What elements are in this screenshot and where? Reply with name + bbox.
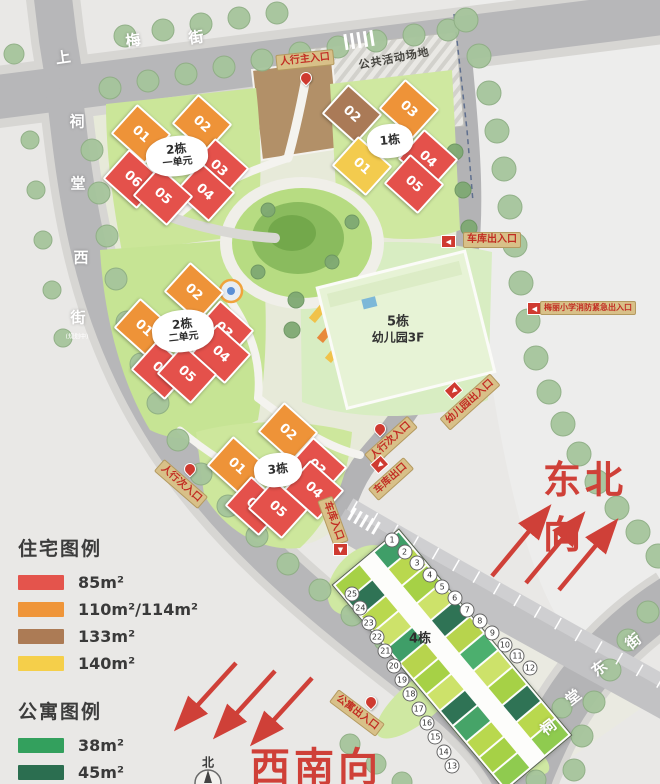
street-shangmei-char: 街 bbox=[187, 26, 205, 49]
legend-swatch-133 bbox=[18, 629, 64, 644]
building-name: 3栋 bbox=[267, 462, 289, 478]
tree-icon bbox=[251, 265, 265, 279]
tree-icon bbox=[467, 44, 491, 68]
building-sub: 二单元 bbox=[168, 331, 199, 346]
street-citang-west-note: (规划中) bbox=[66, 332, 89, 341]
unit-number-badge: 14 bbox=[436, 744, 451, 759]
tree-icon bbox=[325, 255, 339, 269]
tree-icon bbox=[266, 2, 288, 24]
street-shangmei-char: 上 bbox=[54, 46, 72, 69]
tree-icon bbox=[403, 24, 425, 46]
unit-number-badge: 25 bbox=[345, 587, 360, 602]
unit-number-badge: 11 bbox=[510, 649, 525, 664]
unit-number-badge: 9 bbox=[485, 626, 500, 641]
school-fire-exit-label: 梅丽小学消防紧急出入口 bbox=[540, 301, 636, 315]
tree-icon bbox=[213, 56, 235, 78]
tree-icon bbox=[454, 8, 478, 32]
street-citang-west-char: 街 bbox=[70, 307, 85, 328]
tree-icon bbox=[43, 281, 61, 299]
tree-icon bbox=[277, 553, 299, 575]
unit-number-badge: 21 bbox=[378, 644, 393, 659]
legend-label: 110m²/114m² bbox=[78, 600, 198, 619]
tree-icon bbox=[492, 157, 516, 181]
legend: 住宅图例 85m² 110m²/114m² 133m² 140m² 公寓图例 3… bbox=[18, 534, 248, 784]
legend-swatch-85 bbox=[18, 575, 64, 590]
tree-icon bbox=[105, 268, 127, 290]
tree-icon bbox=[167, 429, 189, 451]
legend-label: 45m² bbox=[78, 763, 124, 782]
street-shangmei-char: 梅 bbox=[124, 29, 142, 52]
tree-icon bbox=[152, 19, 174, 41]
unit-number-badge: 3 bbox=[410, 556, 425, 571]
direction-northeast: 东北向 bbox=[543, 449, 660, 559]
tree-icon bbox=[583, 691, 605, 713]
street-citang-west-char: 西 bbox=[73, 247, 88, 268]
tree-icon bbox=[81, 139, 103, 161]
tree-icon bbox=[509, 271, 533, 295]
street-citang-west-char: 祠 bbox=[69, 111, 84, 132]
legend-swatch-45 bbox=[18, 765, 64, 780]
unit-number-badge: 7 bbox=[460, 602, 475, 617]
unit-number-badge: 20 bbox=[386, 658, 401, 673]
unit-number-badge: 1 bbox=[385, 533, 400, 548]
garage-entrance-arrow-icon: ▼ bbox=[333, 543, 348, 556]
tree-icon bbox=[551, 412, 575, 436]
legend-residential-title: 住宅图例 bbox=[18, 534, 248, 561]
building-sub: 幼儿园3F bbox=[372, 331, 425, 346]
tree-icon bbox=[537, 380, 561, 404]
legend-label: 38m² bbox=[78, 736, 124, 755]
site-plan-map: 上 梅 街 祠 堂 西 街 (规划中) 祠 堂 东 街 公共活动场地 01 02… bbox=[0, 0, 660, 784]
legend-label: 85m² bbox=[78, 573, 124, 592]
tree-icon bbox=[34, 231, 52, 249]
building-5-label: 5栋 幼儿园3F bbox=[372, 314, 425, 345]
building-4-label: 4栋 bbox=[409, 628, 431, 647]
legend-row: 140m² bbox=[18, 654, 248, 673]
unit-number-badge: 23 bbox=[361, 615, 376, 630]
building-sub: 一单元 bbox=[162, 156, 193, 171]
building-name: 1栋 bbox=[379, 133, 401, 149]
tree-icon bbox=[637, 601, 659, 623]
unit-number-badge: 16 bbox=[420, 716, 435, 731]
legend-label: 133m² bbox=[78, 627, 135, 646]
tree-icon bbox=[88, 182, 110, 204]
tree-icon bbox=[228, 7, 250, 29]
unit-number-badge: 17 bbox=[411, 701, 426, 716]
unit-number-badge: 24 bbox=[353, 601, 368, 616]
tree-icon bbox=[21, 131, 39, 149]
unit-number-badge: 15 bbox=[428, 730, 443, 745]
tree-icon bbox=[485, 119, 509, 143]
tree-icon bbox=[365, 30, 387, 52]
garage-entrance-exit-label: 车库出入口 bbox=[463, 232, 521, 248]
legend-row: 38m² bbox=[18, 736, 248, 755]
tree-icon bbox=[455, 182, 471, 198]
legend-swatch-110 bbox=[18, 602, 64, 617]
legend-row: 85m² bbox=[18, 573, 248, 592]
tree-icon bbox=[99, 77, 121, 99]
legend-swatch-38 bbox=[18, 738, 64, 753]
legend-label: 140m² bbox=[78, 654, 135, 673]
tree-icon bbox=[571, 725, 593, 747]
tree-icon bbox=[175, 63, 197, 85]
unit-number-badge: 4 bbox=[422, 567, 437, 582]
tree-icon bbox=[563, 759, 585, 781]
garage-entrance-exit-arrow-icon: ◀ bbox=[441, 235, 456, 248]
unit-number-badge: 2 bbox=[397, 544, 412, 559]
legend-apartment-title: 公寓图例 bbox=[18, 697, 248, 724]
legend-row: 110m²/114m² bbox=[18, 600, 248, 619]
building-name: 5栋 bbox=[372, 314, 425, 330]
street-citang-west-char: 堂 bbox=[70, 173, 85, 194]
tree-icon bbox=[137, 70, 159, 92]
tree-icon bbox=[4, 44, 24, 64]
tree-icon bbox=[477, 81, 501, 105]
legend-row: 45m² bbox=[18, 763, 248, 782]
tree-icon bbox=[96, 225, 118, 247]
direction-southwest: 西南向 bbox=[250, 735, 382, 784]
unit-number-badge: 6 bbox=[447, 591, 462, 606]
tree-icon bbox=[309, 579, 331, 601]
tree-icon bbox=[288, 292, 304, 308]
unit-number-badge: 8 bbox=[472, 614, 487, 629]
unit-number-badge: 13 bbox=[445, 759, 460, 774]
tree-icon bbox=[345, 215, 359, 229]
tree-icon bbox=[524, 346, 548, 370]
tree-icon bbox=[498, 195, 522, 219]
unit-number-badge: 22 bbox=[370, 630, 385, 645]
unit-number-badge: 18 bbox=[403, 687, 418, 702]
unit-number-badge: 19 bbox=[395, 673, 410, 688]
tree-icon bbox=[27, 181, 45, 199]
tree-icon bbox=[284, 322, 300, 338]
tree-icon bbox=[261, 203, 275, 217]
legend-swatch-140 bbox=[18, 656, 64, 671]
unit-number-badge: 12 bbox=[523, 661, 538, 676]
tree-icon bbox=[251, 49, 273, 71]
unit-number-badge: 10 bbox=[497, 637, 512, 652]
unit-number-badge: 5 bbox=[435, 579, 450, 594]
legend-row: 133m² bbox=[18, 627, 248, 646]
